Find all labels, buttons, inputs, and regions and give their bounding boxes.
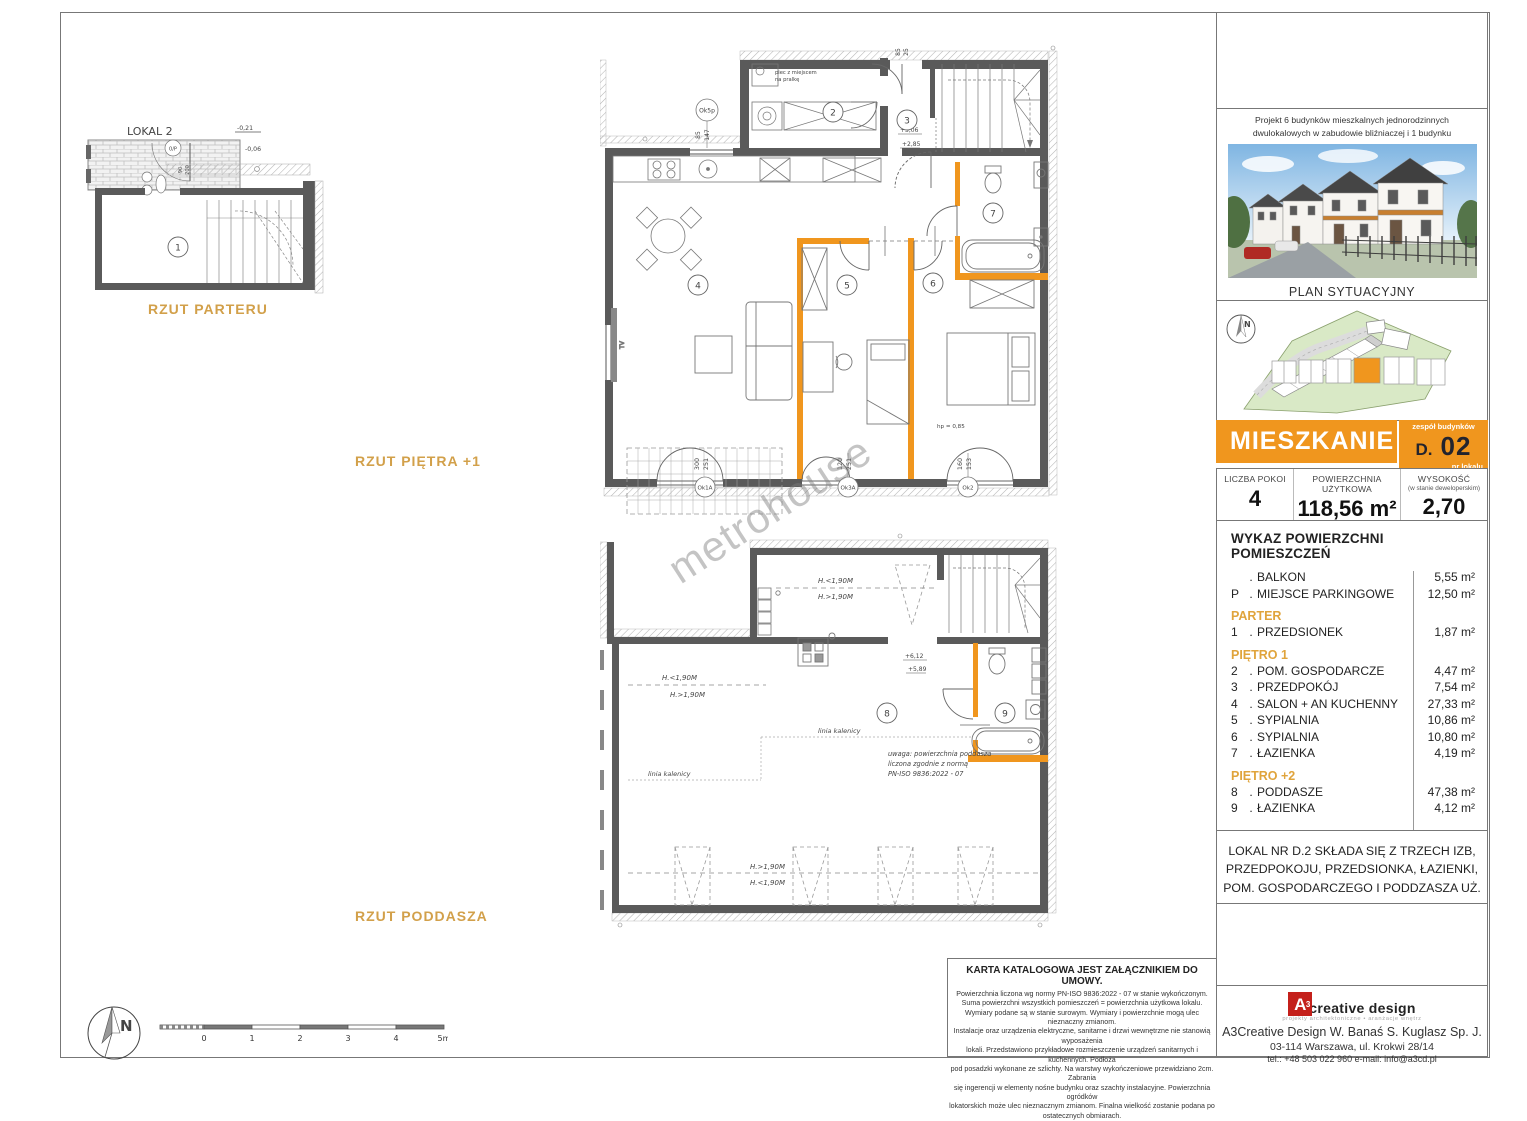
stairs	[949, 555, 1040, 633]
disclaimer-line: Instalacje oraz urządzenia elektryczne, …	[948, 1027, 1216, 1046]
hp-note: hp = 0,85	[937, 424, 965, 430]
orange-walls	[968, 643, 1048, 762]
disclaimer-line: Wymiary podane są w stanie surowym. Wymi…	[948, 1009, 1216, 1028]
svg-text:251: 251	[702, 458, 710, 470]
highlighted-building	[1354, 358, 1380, 383]
svg-text:160: 160	[956, 458, 964, 470]
company-box: A3 creative design projekty architektoni…	[1216, 985, 1488, 1057]
level-marks: +6,12 +5,89	[903, 653, 927, 673]
company-address: 03-114 Warszawa, ul. Krokwi 28/14	[1217, 1041, 1487, 1053]
table-row: 1. PRZEDSIONEK1,87 m²	[1231, 624, 1475, 641]
utility-room: piec z miejscem na pralkę	[752, 64, 876, 130]
empty-box	[1216, 903, 1488, 986]
disclaimer-line: pod posadzki wykonane ze szlichty. Na wa…	[948, 1065, 1216, 1084]
lokal-note-line: PRZEDPOKOJU, PRZEDSIONKA, ŁAZIENKI,	[1217, 860, 1487, 878]
room-areas-box: WYKAZ POWIERZCHNI POMIESZCZEŃ . BALKON5,…	[1216, 520, 1488, 831]
lokal-note-line: LOKAL NR D.2 SKŁADA SIĘ Z TRZECH IZB,	[1217, 842, 1487, 860]
svg-text:linia kalenicy: linia kalenicy	[818, 727, 861, 735]
window-code: Ok5p	[699, 108, 715, 115]
svg-text:6: 6	[930, 280, 936, 290]
building-tab: zespół budynków D. 02 nr lokalu	[1399, 420, 1488, 470]
lokal-note-line: POM. GOSPODARCZEGO I PODDZASZA UŻ.	[1217, 879, 1487, 897]
disclaimer-line: ostatecznych obmiarach.	[948, 1112, 1216, 1121]
svg-text:H.<1,90M: H.<1,90M	[818, 577, 853, 585]
storage-shelves	[758, 588, 780, 635]
level-mark: -0,21	[237, 125, 253, 132]
stat-sublabel: (w stanie deweloperskim)	[1401, 485, 1487, 492]
kitchen	[613, 156, 881, 182]
roof-windows	[675, 847, 993, 905]
a3-logo-icon: A3	[1288, 992, 1312, 1016]
room-numbers: 8 9	[877, 703, 1015, 723]
table-row: 3. PRZEDPOKÓJ7,54 m²	[1231, 679, 1475, 696]
group-heading: PIĘTRO 1	[1231, 648, 1475, 663]
svg-text:H.<1,90M: H.<1,90M	[662, 674, 697, 682]
door-code: 0/P	[169, 147, 177, 153]
stat-label: WYSOKOŚĆ	[1401, 474, 1487, 484]
boiler-note: piec z miejscem	[775, 70, 817, 76]
svg-text:H.>1,90M: H.>1,90M	[750, 863, 785, 871]
stairs	[936, 64, 1040, 152]
disclaimer-line: lokali. Przedstawiono przykładowe rozmie…	[948, 1046, 1216, 1065]
svg-text:5: 5	[844, 282, 850, 292]
svg-text:2: 2	[830, 109, 836, 119]
apartment-title: MIESZKANIE	[1230, 427, 1394, 456]
bathroom9	[972, 648, 1046, 754]
stat-value: 2,70	[1401, 494, 1487, 520]
disclaimer-line: Suma powierzchni wszystkich pomieszczeń …	[948, 999, 1216, 1008]
site-plan-map: N	[1217, 301, 1487, 420]
apartment-header-band: MIESZKANIE	[1216, 420, 1397, 463]
logo-name: creative design	[1309, 1000, 1415, 1016]
room-number: 1	[175, 244, 181, 254]
attic-note: uwaga: powierzchnia poddasza liczona zgo…	[888, 750, 991, 778]
svg-text:+5,89: +5,89	[908, 666, 927, 673]
table-row: 4. SALON + AN KUCHENNY27,33 m²	[1231, 696, 1475, 713]
bathroom7	[962, 162, 1048, 272]
svg-text:+2,85: +2,85	[902, 141, 921, 148]
group-label: zespół budynków	[1399, 420, 1488, 431]
stat-height: WYSOKOŚĆ (w stanie deweloperskim) 2,70	[1400, 469, 1487, 520]
svg-text:300: 300	[693, 458, 701, 470]
dining-table	[636, 207, 701, 270]
compass-n-label: N	[120, 1017, 133, 1035]
project-photo	[1228, 144, 1477, 278]
scale-tick: 3	[345, 1034, 350, 1043]
site-plan-box: N	[1216, 300, 1488, 421]
label-rzut-poddasza: RZUT PODDASZA	[355, 908, 488, 924]
catalog-sheet: { "watermark": "metrohouse", "plan_label…	[0, 0, 1527, 1080]
svg-text:H.<1,90M: H.<1,90M	[750, 879, 785, 887]
company-logo: A3 creative design	[1288, 992, 1415, 1016]
disclaimer-line: się ingerencji w elementy nośne budynku …	[948, 1084, 1216, 1103]
table-row: 8. PODDASZE47,38 m²	[1231, 784, 1475, 801]
group-heading: PARTER	[1231, 609, 1475, 624]
chimney	[798, 633, 835, 666]
floor-plan-parter: LOKAL 2 -0,21 -0,06 0/P 90 200 1	[85, 85, 335, 310]
level-mark: -0,06	[245, 146, 261, 153]
svg-text:liczona zgodnie z normą: liczona zgodnie z normą	[888, 760, 968, 768]
group-heading: PIĘTRO +2	[1231, 769, 1475, 784]
disclaimer-title: KARTA KATALOGOWA JEST ZAŁĄCZNIKIEM DO UM…	[954, 965, 1210, 987]
company-contact: tel.: +48 503 022 960 e-mail: info@a3cd.…	[1217, 1054, 1487, 1064]
table-row: 5. SYPIALNIA10,86 m²	[1231, 712, 1475, 729]
company-name: A3Creative Design W. Banaś S. Kuglasz Sp…	[1217, 1025, 1487, 1039]
svg-text:9: 9	[1002, 710, 1008, 720]
lokal-note-box: LOKAL NR D.2 SKŁADA SIĘ Z TRZECH IZB, PR…	[1216, 830, 1488, 904]
lokal2-label: LOKAL 2	[127, 125, 173, 138]
svg-text:153: 153	[965, 458, 973, 470]
stairs	[207, 200, 303, 283]
svg-text:+6,12: +6,12	[905, 653, 924, 660]
table-row: 6. SYPIALNIA10,80 m²	[1231, 729, 1475, 746]
stat-area: POWIERZCHNIA UŻYTKOWA 118,56 m²	[1293, 469, 1400, 520]
label-rzut-parteru: RZUT PARTERU	[148, 301, 268, 317]
plan-sytuacyjny-label: PLAN SYTUACYJNY	[1217, 285, 1487, 299]
disclaimer-box: KARTA KATALOGOWA JEST ZAŁĄCZNIKIEM DO UM…	[947, 958, 1217, 1057]
table-row: 7. ŁAZIENKA4,19 m²	[1231, 745, 1475, 762]
table-row: 2. POM. GOSPODARCZE4,47 m²	[1231, 663, 1475, 680]
disclaimer-line: Powierzchnia liczona wg normy PN-ISO 983…	[948, 990, 1216, 999]
site-compass-n: N	[1244, 320, 1251, 329]
bedroom5-furniture	[802, 248, 909, 424]
table-row: . BALKON5,55 m²	[1231, 569, 1475, 586]
svg-text:linia kalenicy: linia kalenicy	[648, 770, 691, 778]
scale-tick: 0	[201, 1034, 206, 1043]
svg-text:Ok1A: Ok1A	[697, 486, 712, 492]
svg-text:7: 7	[990, 210, 996, 220]
title-block-empty-top	[1216, 12, 1488, 109]
living-room-furniture: TV	[611, 302, 792, 400]
scale-tick: 1	[249, 1034, 254, 1043]
stat-value: 118,56 m²	[1294, 496, 1400, 522]
stat-label: LICZBA POKOI	[1217, 474, 1293, 484]
svg-text:H.>1,90M: H.>1,90M	[818, 593, 853, 601]
stat-label: POWIERZCHNIA UŻYTKOWA	[1294, 474, 1400, 494]
scale-tick: 4	[393, 1034, 398, 1043]
label-rzut-pietra: RZUT PIĘTRA +1	[355, 453, 481, 469]
table-row: 9. ŁAZIENKA4,12 m²	[1231, 800, 1475, 817]
dim: 25	[903, 48, 910, 56]
orange-walls	[797, 162, 1048, 479]
svg-text:4: 4	[695, 282, 701, 292]
walls	[605, 58, 1048, 487]
tv-label: TV	[619, 340, 626, 350]
stat-rooms: LICZBA POKOI 4	[1217, 469, 1293, 520]
disclaimer-line: lokatorskich może ulec nieznacznym zmian…	[948, 1102, 1216, 1111]
dim: 85	[895, 48, 902, 56]
scale-bar: 0 1 2 3 4 5m	[158, 1014, 448, 1046]
svg-text:8: 8	[884, 710, 890, 720]
svg-text:Ok2: Ok2	[962, 486, 973, 492]
stat-value: 4	[1217, 486, 1293, 512]
column-divider	[1413, 571, 1414, 833]
scale-tick: 5m	[438, 1034, 448, 1043]
project-box: Projekt 6 budynków mieszkalnych jednorod…	[1216, 108, 1488, 301]
building-letter: D.	[1416, 440, 1433, 460]
scale-tick: 2	[297, 1034, 302, 1043]
svg-text:3: 3	[904, 117, 910, 127]
svg-text:uwaga: powierzchnia poddasza: uwaga: powierzchnia poddasza	[888, 750, 991, 758]
north-compass: N	[84, 1002, 146, 1064]
svg-text:H.>1,90M: H.>1,90M	[670, 691, 705, 699]
boiler-note: na pralkę	[775, 77, 799, 83]
unit-number: 02	[1441, 431, 1472, 462]
dim: 147	[704, 129, 711, 141]
dim: 85	[695, 131, 702, 139]
ridge-labels: linia kalenicy linia kalenicy	[648, 727, 861, 778]
stats-box: LICZBA POKOI 4 POWIERZCHNIA UŻYTKOWA 118…	[1216, 468, 1488, 521]
logo-tagline: projekty architektoniczne • aranżacje wn…	[1217, 1016, 1487, 1022]
room-areas-title: WYKAZ POWIERZCHNI POMIESZCZEŃ	[1231, 531, 1487, 561]
table-row: P. MIEJSCE PARKINGOWE12,50 m²	[1231, 586, 1475, 603]
svg-text:PN-ISO 9836:2022 - 07: PN-ISO 9836:2022 - 07	[888, 770, 964, 778]
bedroom6-furniture	[947, 280, 1035, 405]
